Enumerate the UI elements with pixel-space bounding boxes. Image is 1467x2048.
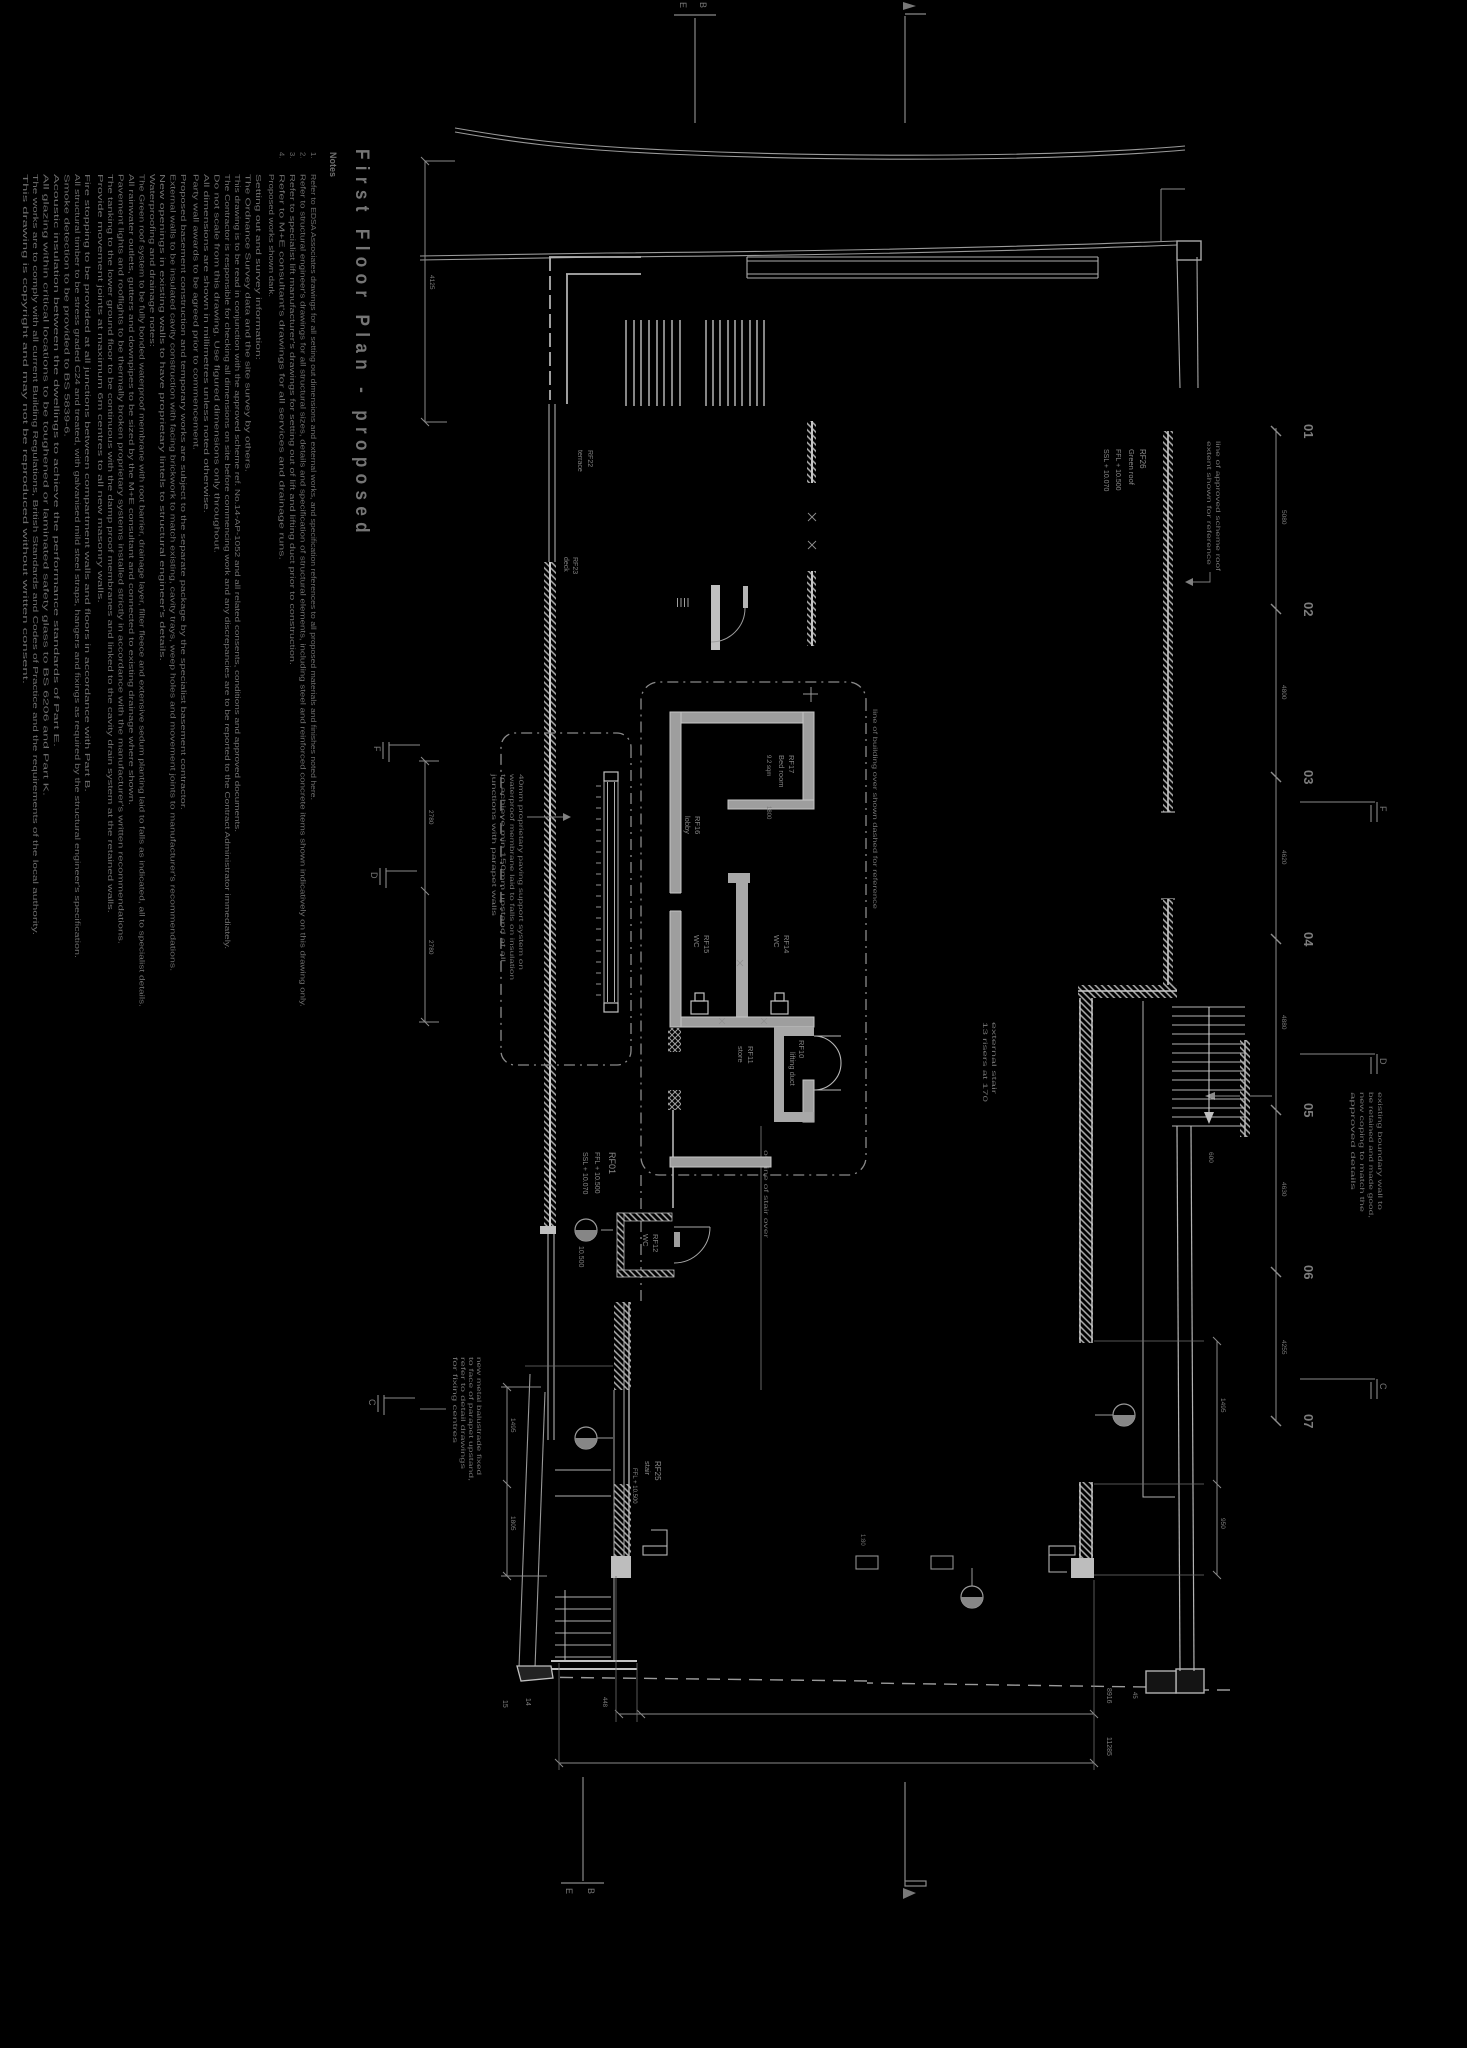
svg-text:New openings in existing walls: New openings in existing walls to have p… <box>158 174 167 661</box>
svg-text:be retained and made good,: be retained and made good, <box>1367 1092 1374 1218</box>
svg-text:Pavement lights and rooflights: Pavement lights and rooflights to be the… <box>117 174 126 944</box>
svg-text:to achieve min 150mm upstand a: to achieve min 150mm upstand at all <box>499 774 506 962</box>
svg-text:5080: 5080 <box>1280 510 1287 525</box>
svg-text:Refer to M+E consultant's draw: Refer to M+E consultant's drawings for a… <box>278 174 287 560</box>
svg-text:This drawing is copyright and: This drawing is copyright and may not be… <box>21 174 30 684</box>
svg-text:new metal balustrade fixed: new metal balustrade fixed <box>475 1357 481 1475</box>
svg-text:for fixing centres: for fixing centres <box>451 1357 457 1443</box>
svg-text:waterproof membrane laid to fa: waterproof membrane laid to falls on ins… <box>508 772 515 980</box>
svg-text:RF12: RF12 <box>651 1234 660 1252</box>
svg-text:refer to detail drawings: refer to detail drawings <box>459 1357 465 1469</box>
svg-text:store: store <box>736 1046 745 1063</box>
svg-text:Fire stopping to be provided a: Fire stopping to be provided at all junc… <box>83 174 92 792</box>
svg-text:Proposed works shown dark.: Proposed works shown dark. <box>267 174 276 297</box>
svg-text:01: 01 <box>1301 424 1316 438</box>
svg-text:Smoke detection to be provided: Smoke detection to be provided to BS 583… <box>62 174 71 437</box>
svg-text:F: F <box>1378 806 1388 812</box>
svg-text:B: B <box>586 1888 596 1894</box>
svg-text:E: E <box>564 1888 574 1894</box>
svg-text:new coping to match the: new coping to match the <box>1358 1092 1365 1213</box>
svg-text:Bed room: Bed room <box>777 755 786 788</box>
svg-text:extent shown for reference: extent shown for reference <box>1205 441 1212 566</box>
svg-text:stair: stair <box>643 1461 652 1476</box>
svg-text:03: 03 <box>1301 770 1316 784</box>
svg-text:RF25: RF25 <box>653 1461 662 1481</box>
svg-text:All structural timber to be st: All structural timber to be stress grade… <box>73 174 82 958</box>
svg-text:line of building over shown da: line of building over shown dashed for r… <box>871 709 878 910</box>
svg-text:4630: 4630 <box>1280 1182 1287 1197</box>
svg-text:1:80: 1:80 <box>859 1534 865 1546</box>
svg-text:1495: 1495 <box>1219 1398 1226 1413</box>
svg-text:Setting out and survey informa: Setting out and survey information: <box>254 174 263 360</box>
svg-text:external stair: external stair <box>990 1022 997 1094</box>
svg-text:B: B <box>698 2 708 8</box>
svg-text:1800: 1800 <box>765 806 771 820</box>
svg-text:2.: 2. <box>299 152 308 158</box>
svg-text:All glazing within critical lo: All glazing within critical locations to… <box>42 174 51 796</box>
svg-text:FFL + 10.500: FFL + 10.500 <box>1114 449 1121 491</box>
svg-text:lifting duct: lifting duct <box>788 1052 797 1087</box>
svg-text:Do not scale from this drawing: Do not scale from this drawing. Use figu… <box>212 174 221 553</box>
svg-text:First Floor Plan - proposed: First Floor Plan - proposed <box>351 149 372 539</box>
svg-text:External walls to be insulated: External walls to be insulated cavity co… <box>169 174 178 971</box>
svg-text:RF10: RF10 <box>797 1040 806 1058</box>
svg-text:4.: 4. <box>278 152 287 158</box>
svg-text:Refer to structural engineer's: Refer to structural engineer's drawings … <box>299 174 308 1007</box>
svg-text:Refer to specialist lift manuf: Refer to specialist lift manufacturer's … <box>288 174 297 665</box>
svg-text:FFL + 10.500: FFL + 10.500 <box>593 1152 600 1194</box>
svg-text:Green roof: Green roof <box>1127 449 1136 486</box>
svg-text:07: 07 <box>1301 1414 1316 1428</box>
svg-text:15: 15 <box>501 1700 508 1708</box>
svg-text:2780: 2780 <box>427 810 434 825</box>
svg-text:4620: 4620 <box>1280 850 1287 865</box>
svg-text:4880: 4880 <box>1280 1015 1287 1030</box>
svg-text:RF01: RF01 <box>607 1152 617 1174</box>
svg-text:RF17: RF17 <box>787 755 796 773</box>
svg-text:lobby: lobby <box>683 816 692 834</box>
svg-text:RF16: RF16 <box>693 816 702 834</box>
svg-text:10.500: 10.500 <box>577 1246 584 1268</box>
svg-text:RF23: RF23 <box>571 557 578 574</box>
svg-text:Provide movement joints at max: Provide movement joints at maximum 6m ce… <box>96 174 105 603</box>
svg-text:1495: 1495 <box>509 1418 516 1433</box>
svg-text:terrace: terrace <box>576 450 583 472</box>
svg-text:The Green roof system to be fu: The Green roof system to be fully bonded… <box>137 174 146 1007</box>
svg-text:line of approved scheme roof: line of approved scheme roof <box>1214 441 1221 571</box>
svg-text:FFL + 10.500: FFL + 10.500 <box>631 1468 637 1504</box>
svg-text:448: 448 <box>601 1697 607 1708</box>
svg-text:The Ordnance Survey data and t: The Ordnance Survey data and the site su… <box>244 174 253 472</box>
svg-text:4125: 4125 <box>428 275 435 290</box>
svg-text:WC: WC <box>692 935 701 948</box>
svg-text:E: E <box>678 2 688 8</box>
svg-text:14: 14 <box>524 1698 531 1706</box>
svg-text:All dimensions are shown in mi: All dimensions are shown in millimetres … <box>202 174 211 513</box>
svg-text:All rainwater outlets, gutters: All rainwater outlets, gutters and downp… <box>127 174 136 805</box>
svg-text:8916: 8916 <box>1105 1688 1112 1704</box>
svg-text:1.: 1. <box>309 152 318 158</box>
svg-text:C: C <box>1378 1383 1388 1390</box>
svg-text:WC: WC <box>772 935 781 948</box>
svg-text:45: 45 <box>1131 1692 1137 1699</box>
svg-text:WC: WC <box>641 1234 650 1247</box>
svg-text:2780: 2780 <box>427 940 434 955</box>
svg-text:RF26: RF26 <box>1138 449 1147 469</box>
svg-text:06: 06 <box>1301 1265 1316 1279</box>
svg-text:4255: 4255 <box>1280 1340 1287 1355</box>
svg-text:to face of parapet upstand,: to face of parapet upstand, <box>467 1357 473 1482</box>
svg-text:existing boundary wall to: existing boundary wall to <box>1376 1092 1383 1211</box>
svg-text:13 risers at 170: 13 risers at 170 <box>981 1022 988 1103</box>
svg-text:40mm proprietary paving suppor: 40mm proprietary paving support system o… <box>517 774 524 971</box>
svg-text:RF15: RF15 <box>702 935 711 953</box>
svg-text:D: D <box>369 872 379 879</box>
svg-text:D: D <box>1378 1058 1388 1065</box>
svg-text:3.: 3. <box>288 152 297 158</box>
svg-text:Proposed basement construction: Proposed basement construction and tempo… <box>179 174 188 810</box>
svg-text:Party wall awards to be agreed: Party wall awards to be agreed prior to … <box>192 174 201 450</box>
svg-text:RF11: RF11 <box>746 1046 755 1064</box>
svg-text:The works are to comply with a: The works are to comply with all current… <box>31 174 40 935</box>
svg-text:This drawing is to be read in: This drawing is to be read in conjunctio… <box>233 174 242 832</box>
svg-text:SSL + 10.070: SSL + 10.070 <box>581 1152 588 1194</box>
svg-text:SSL + 10.070: SSL + 10.070 <box>1102 449 1109 491</box>
svg-text:deck: deck <box>562 557 569 572</box>
svg-text:The tanking to the lower groun: The tanking to the lower ground floor to… <box>106 174 115 913</box>
svg-text:11285: 11285 <box>1105 1737 1112 1756</box>
svg-text:05: 05 <box>1301 1103 1316 1117</box>
svg-text:Waterproofing and drainage not: Waterproofing and drainage notes: <box>148 174 157 347</box>
svg-text:junctions with parapet walls: junctions with parapet walls <box>490 772 497 916</box>
svg-text:02: 02 <box>1301 602 1316 616</box>
svg-text:F: F <box>372 746 382 752</box>
svg-text:approved details: approved details <box>1349 1092 1356 1190</box>
svg-text:600: 600 <box>1207 1152 1214 1163</box>
svg-text:950: 950 <box>1219 1518 1226 1529</box>
svg-text:9.2 sqm: 9.2 sqm <box>765 755 771 776</box>
svg-text:Acoustic insulation between th: Acoustic insulation between the dwelling… <box>52 174 61 747</box>
svg-text:RF22: RF22 <box>586 450 593 467</box>
svg-text:RF14: RF14 <box>782 935 791 953</box>
svg-text:The Contractor is responsible: The Contractor is responsible for checki… <box>223 174 232 949</box>
svg-text:4800: 4800 <box>1280 685 1287 700</box>
svg-text:1805: 1805 <box>509 1516 516 1531</box>
svg-text:Refer to EDSA Associates drawi: Refer to EDSA Associates drawings for al… <box>309 174 318 800</box>
svg-text:C: C <box>367 1399 377 1406</box>
svg-text:Notes: Notes <box>328 152 338 177</box>
svg-text:04: 04 <box>1301 932 1316 947</box>
